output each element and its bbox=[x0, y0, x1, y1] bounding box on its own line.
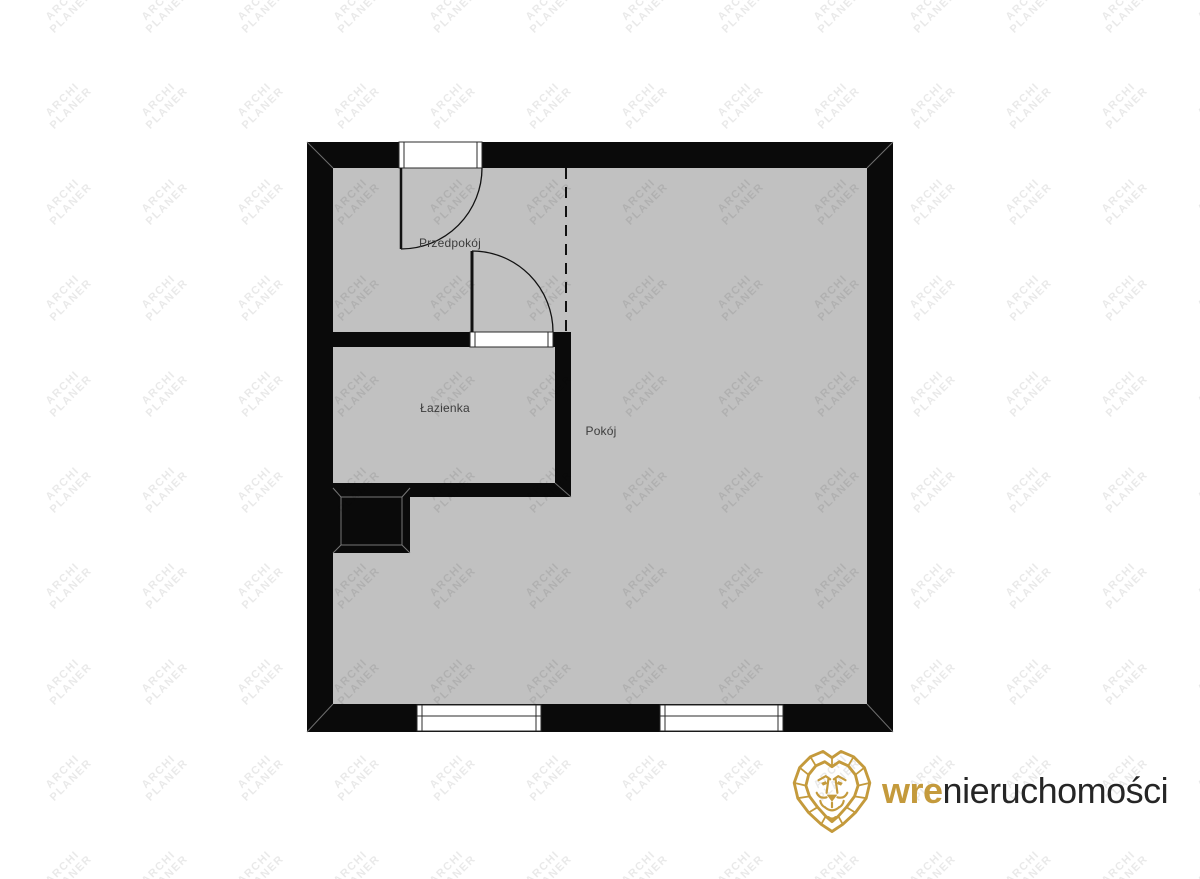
lion-icon bbox=[787, 745, 877, 837]
room-label-pokoj: Pokój bbox=[585, 424, 616, 438]
brand-logo: wrenieruchomości bbox=[787, 745, 1168, 837]
brand-name-bold: wre bbox=[882, 770, 943, 811]
room-label-lazienka: Łazienka bbox=[420, 401, 470, 415]
brand-name-rest: nieruchomości bbox=[943, 770, 1169, 811]
brand-name: wrenieruchomości bbox=[882, 773, 1168, 809]
room-label-przedpokoj: Przedpokój bbox=[419, 236, 481, 250]
